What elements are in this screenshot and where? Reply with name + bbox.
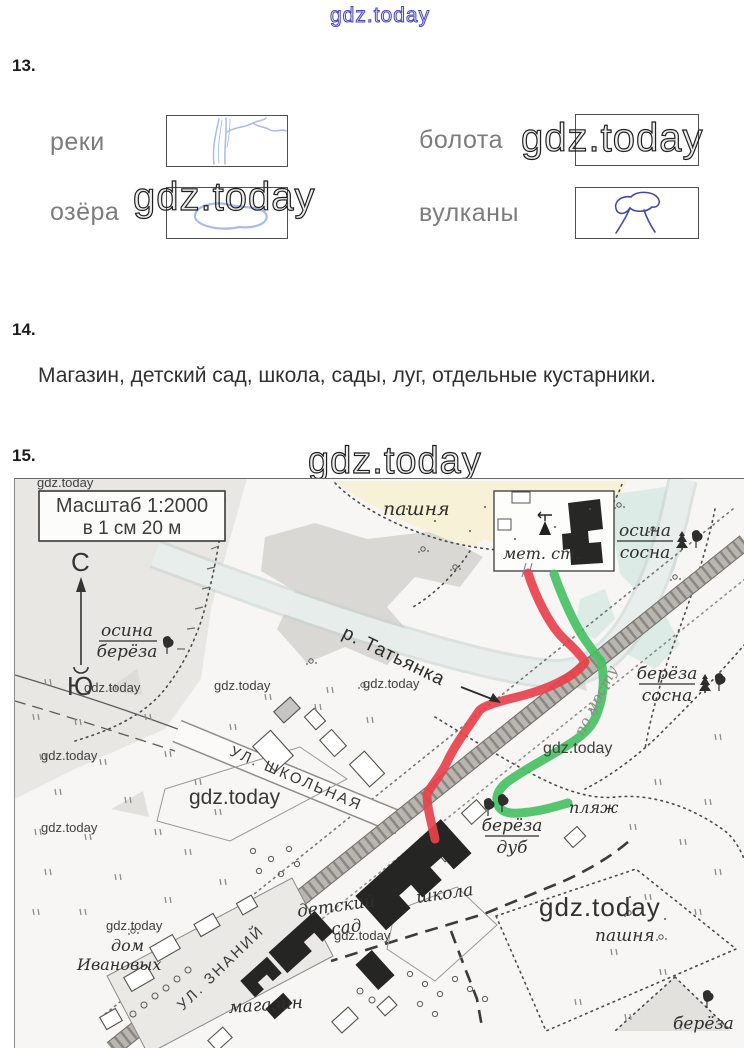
legend-text: осина — [101, 621, 153, 641]
map-watermark: gdz.today — [363, 676, 420, 691]
label-pashnya-bottom: пашня — [595, 926, 655, 946]
watermark-row2: gdz.today — [133, 175, 315, 220]
rivers-symbol-sketch — [167, 116, 287, 166]
map-watermark: gdz.today — [41, 820, 98, 835]
legend-text: берёза — [482, 816, 543, 836]
watermark-map-top: gdz.today — [308, 440, 482, 483]
map-plan: Масштаб 1:2000 в 1 см 20 м С Ю осина бер… — [14, 478, 744, 1048]
legend-text: берёза — [673, 1014, 734, 1034]
task14-answer: Магазин, детский сад, школа, сады, луг, … — [38, 364, 742, 388]
map-watermark: gdz.today — [189, 786, 281, 809]
label-house-2: Ивановых — [76, 955, 161, 974]
scale-line1: Масштаб 1:2000 — [56, 495, 208, 517]
map-watermark: gdz.today — [37, 479, 94, 490]
scale-box: Масштаб 1:2000 в 1 см 20 м — [39, 491, 225, 541]
map-watermark: gdz.today — [106, 918, 163, 933]
label-swamps: болота — [419, 126, 503, 155]
map-watermark: gdz.today — [41, 748, 98, 763]
label-house-1: дом — [111, 936, 144, 955]
site-watermark-top: gdz.today — [330, 4, 430, 28]
legend-text: осина — [619, 521, 671, 541]
rivers-symbol-box — [166, 115, 288, 167]
meteo-station — [494, 491, 614, 577]
legend-text: берёза — [637, 664, 698, 684]
volcanoes-symbol-sketch — [576, 188, 698, 238]
map-watermark: gdz.today — [214, 678, 271, 693]
legend-text: сосна — [620, 543, 671, 563]
map-watermark: gdz.today — [334, 928, 391, 943]
task15-number: 15. — [12, 446, 36, 466]
map-watermark: gdz.today — [84, 680, 141, 695]
label-rivers: реки — [50, 128, 105, 157]
label-lakes: озёра — [50, 198, 119, 227]
label-pashnya-top: пашня — [383, 498, 450, 520]
map-canvas: Масштаб 1:2000 в 1 см 20 м С Ю осина бер… — [15, 479, 744, 1048]
legend-text: берёза — [97, 642, 158, 662]
label-met-st: мет. ст. — [503, 544, 580, 563]
watermark-row1: gdz.today — [521, 116, 703, 161]
task14-number: 14. — [12, 320, 36, 340]
legend-text: сосна — [642, 686, 693, 706]
map-watermark: gdz.today — [543, 740, 612, 757]
label-beach: пляж — [569, 798, 619, 817]
map-watermark: gdz.today — [539, 892, 661, 922]
legend-text: дуб — [496, 838, 528, 858]
compass-north-label: С — [71, 547, 90, 577]
volcanoes-symbol-box — [575, 187, 699, 239]
task13-number: 13. — [12, 56, 36, 76]
label-volcanoes: вулканы — [419, 199, 519, 228]
scale-line2: в 1 см 20 м — [83, 518, 182, 539]
